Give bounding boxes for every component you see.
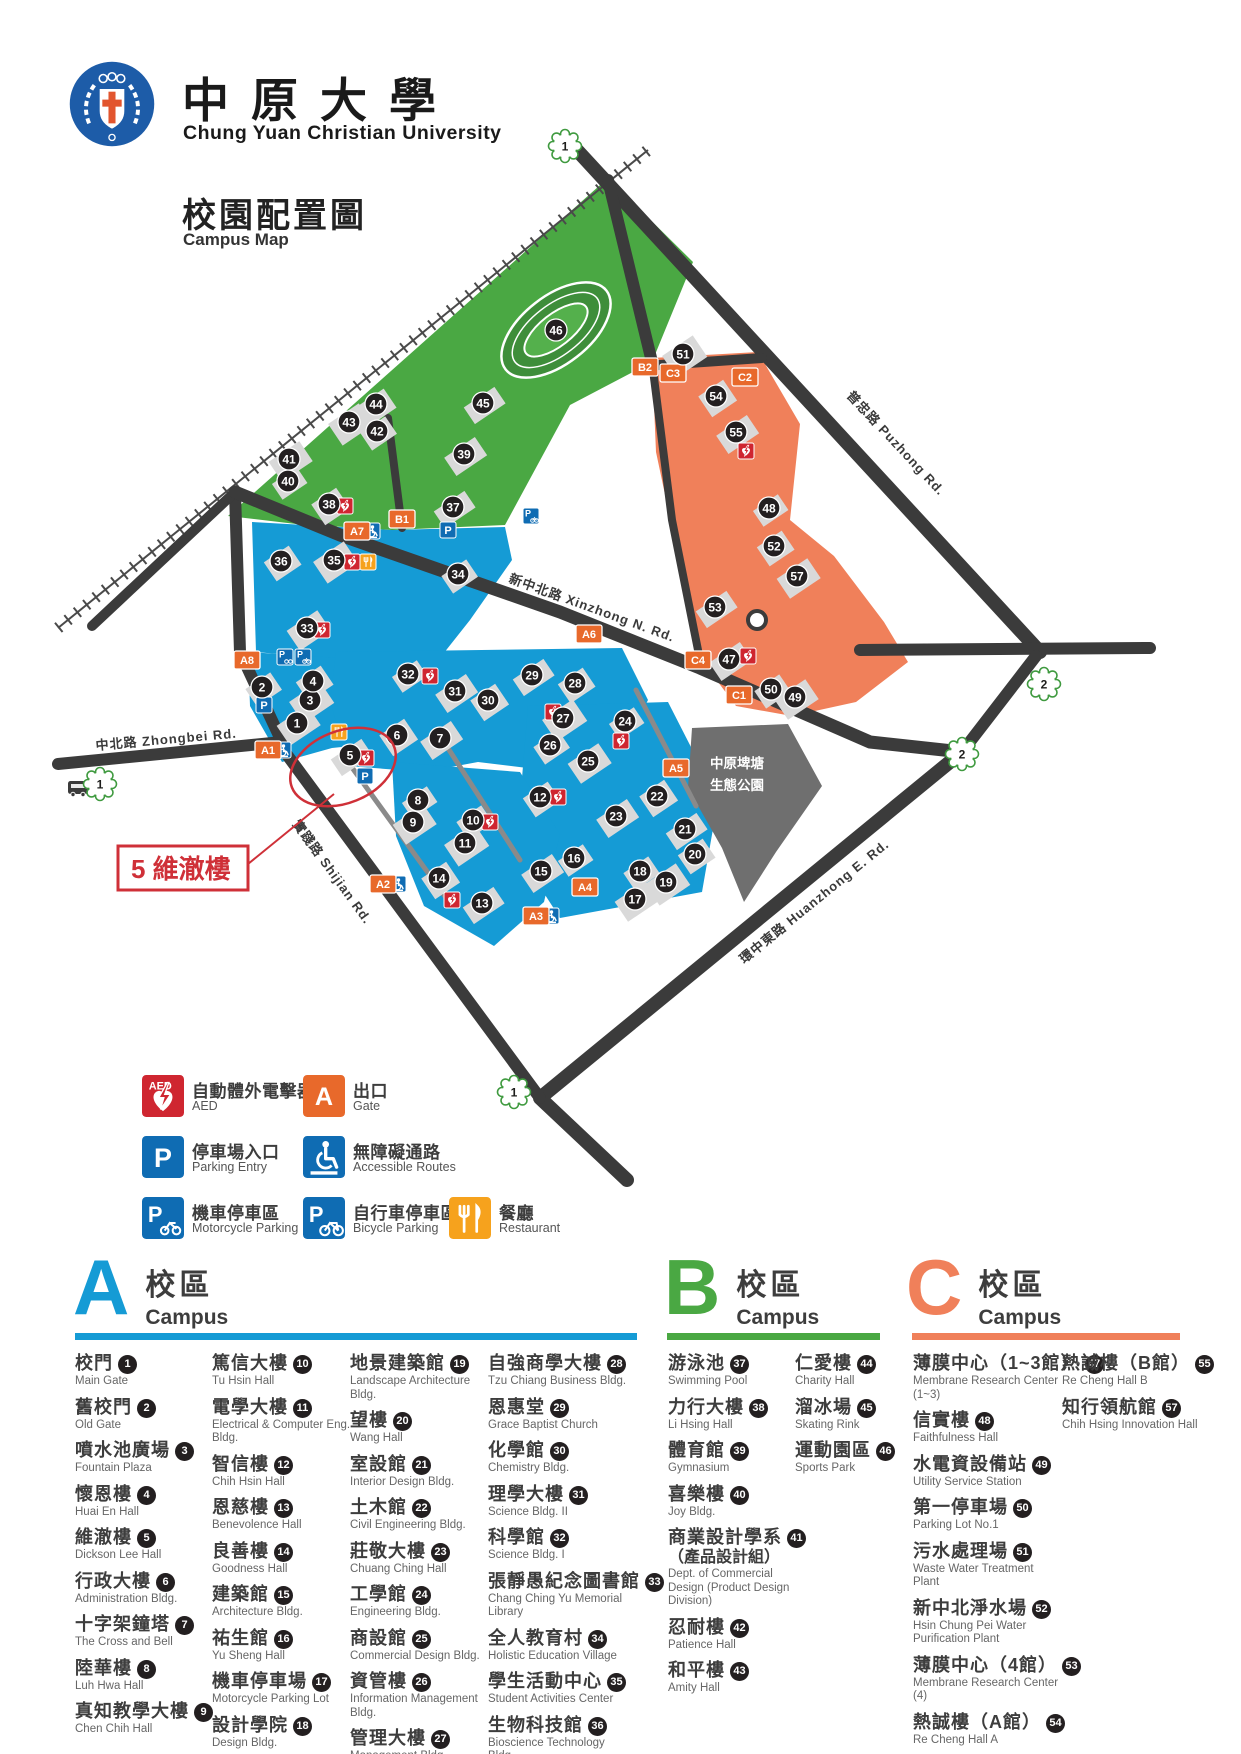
building-name-zh: 智信樓12 <box>212 1453 352 1475</box>
building-list-item-42: 忍耐樓42Patience Hall <box>668 1616 793 1653</box>
building-marker-34: 34 <box>447 563 469 585</box>
road-label: 實踐路 Shijian Rd. <box>290 817 375 927</box>
building-marker-35: 35 <box>323 549 345 571</box>
building-name-en: Utility Service Station <box>913 1476 1060 1490</box>
svg-text:53: 53 <box>708 600 722 614</box>
building-name-zh: 力行大樓38 <box>668 1396 793 1418</box>
building-marker-9: 9 <box>402 811 424 833</box>
building-number-badge: 12 <box>274 1456 293 1475</box>
campus-b-title-en: Campus <box>736 1306 819 1330</box>
svg-text:31: 31 <box>448 684 462 698</box>
building-marker-22: 22 <box>646 785 668 807</box>
building-name-en: The Cross and Bell <box>75 1636 210 1650</box>
building-marker-46: 46 <box>545 319 567 341</box>
aed-icon <box>738 443 754 459</box>
building-name-zh: 第一停車場50 <box>913 1496 1060 1518</box>
svg-text:41: 41 <box>282 452 296 466</box>
building-name-zh: 設計學院18 <box>212 1714 352 1736</box>
svg-text:38: 38 <box>322 497 336 511</box>
building-marker-38: 38 <box>318 493 340 515</box>
building-list-item-5: 維澈樓5Dickson Lee Hall <box>75 1526 210 1563</box>
campus-a-title-en: Campus <box>145 1306 228 1330</box>
building-list-item-32: 科學館32Science Bldg. I <box>488 1526 633 1563</box>
building-name-zh: 喜樂樓40 <box>668 1483 793 1505</box>
building-name-zh: 十字架鐘塔7 <box>75 1613 210 1635</box>
svg-text:37: 37 <box>446 500 460 514</box>
building-name-en: Membrane Research Center (4) <box>913 1677 1060 1704</box>
svg-text:11: 11 <box>459 836 472 850</box>
svg-text:P: P <box>260 700 267 712</box>
building-number-badge: 44 <box>857 1355 876 1374</box>
building-marker-20: 20 <box>684 843 706 865</box>
legend-item-motorcycle-parking: P機車停車區Motorcycle Parking <box>142 1197 317 1243</box>
building-number-badge: 33 <box>645 1573 664 1592</box>
svg-text:9: 9 <box>410 815 417 829</box>
building-marker-33: 33 <box>296 617 318 639</box>
building-name-zh: 薄膜中心（4館）53 <box>913 1654 1060 1676</box>
svg-text:P: P <box>297 650 303 660</box>
building-marker-43: 43 <box>338 411 360 433</box>
svg-text:42: 42 <box>370 424 384 438</box>
svg-text:19: 19 <box>659 875 673 889</box>
road-northwest <box>92 492 235 626</box>
building-list-item-15: 建築館15Architecture Bldg. <box>212 1583 352 1620</box>
svg-text:A5: A5 <box>669 763 683 775</box>
building-number-badge: 46 <box>876 1442 895 1461</box>
svg-text:P: P <box>444 525 451 537</box>
building-marker-41: 41 <box>278 448 300 470</box>
building-name-en: Gymnasium <box>668 1462 793 1476</box>
svg-text:26: 26 <box>543 738 557 752</box>
building-name-en: Science Bldg. I <box>488 1549 633 1563</box>
svg-text:B2: B2 <box>638 362 652 374</box>
svg-text:5: 5 <box>347 748 354 762</box>
building-number-badge: 40 <box>730 1486 749 1505</box>
building-name-en: Dickson Lee Hall <box>75 1549 210 1563</box>
building-name-zh: 陸華樓8 <box>75 1657 210 1679</box>
building-number-badge: 4 <box>137 1486 156 1505</box>
svg-text:33: 33 <box>300 621 314 635</box>
campus-map-poster: 中原埤塘 生態公園 新中北路 Xinzhong N. Rd.普忠路 Puzhon… <box>0 0 1241 1754</box>
campus-c-letter: C <box>906 1252 962 1322</box>
building-list-item-47: 薄膜中心（1~3館）47Membrane Research Center (1~… <box>913 1352 1060 1402</box>
legend-item-aed: AED自動體外電擊器AED <box>142 1075 317 1121</box>
building-marker-12: 12 <box>529 786 551 808</box>
building-number-badge: 26 <box>412 1673 431 1692</box>
gate-badge-A4: A4 <box>572 878 598 896</box>
route-badge-2: 2 <box>946 738 979 771</box>
legend-item-accessible: 無障礙通路Accessible Routes <box>303 1136 478 1182</box>
building-name-en: Tu Hsin Hall <box>212 1375 352 1389</box>
building-name-zh: 污水處理場51 <box>913 1540 1060 1562</box>
parking-entry-icon: P <box>357 768 373 784</box>
building-marker-53: 53 <box>704 596 726 618</box>
building-name-en: Wang Hall <box>350 1432 490 1446</box>
svg-text:44: 44 <box>369 397 383 411</box>
svg-text:6: 6 <box>394 728 401 742</box>
building-marker-51: 51 <box>672 343 694 365</box>
building-marker-36: 36 <box>270 550 292 572</box>
building-name-zh: 篤信大樓10 <box>212 1352 352 1374</box>
building-list-item-23: 莊敬大樓23Chuang Ching Hall <box>350 1540 490 1577</box>
eco-park-label-line2: 生態公園 <box>710 777 764 793</box>
svg-text:14: 14 <box>432 871 446 885</box>
gate-badge-C4: C4 <box>685 651 711 669</box>
building-number-badge: 20 <box>393 1412 412 1431</box>
building-marker-23: 23 <box>605 805 627 827</box>
building-number-badge: 37 <box>730 1355 749 1374</box>
building-name-zh: 校門1 <box>75 1352 210 1374</box>
building-number-badge: 27 <box>431 1730 450 1749</box>
building-name-en: Faithfulness Hall <box>913 1432 1060 1446</box>
building-name-en: Civil Engineering Bldg. <box>350 1519 490 1533</box>
svg-text:40: 40 <box>281 474 295 488</box>
svg-text:17: 17 <box>628 892 642 906</box>
callout-text: 5 維澈樓 <box>131 854 231 884</box>
building-number-badge: 5 <box>137 1529 156 1548</box>
building-name-zh: 商業設計學系41 <box>668 1526 793 1548</box>
building-marker-24: 24 <box>614 710 636 732</box>
building-name-zh: 熱誠樓（B館）55 <box>1062 1352 1212 1374</box>
building-marker-14: 14 <box>428 867 450 889</box>
building-name-zh: 理學大樓31 <box>488 1483 633 1505</box>
building-marker-18: 18 <box>629 860 651 882</box>
building-list-item-17: 機車停車場17Motorcycle Parking Lot <box>212 1670 352 1707</box>
building-name-zh: 良善樓14 <box>212 1540 352 1562</box>
aed-icon <box>740 648 756 664</box>
building-list-item-26: 資管樓26Information Management Bldg. <box>350 1670 490 1720</box>
building-name-en: Luh Hwa Hall <box>75 1680 210 1694</box>
campus-a-column-2: 篤信大樓10Tu Hsin Hall電學大樓11Electrical & Com… <box>212 1352 352 1754</box>
svg-text:50: 50 <box>764 682 778 696</box>
building-number-badge: 11 <box>293 1399 312 1418</box>
svg-text:36: 36 <box>274 554 288 568</box>
svg-text:15: 15 <box>534 864 548 878</box>
building-name-en: Administration Bldg. <box>75 1593 210 1607</box>
building-marker-13: 13 <box>471 892 493 914</box>
route-badge-1: 1 <box>498 1076 531 1109</box>
road-east-ext <box>860 648 1150 650</box>
building-list-item-31: 理學大樓31Science Bldg. II <box>488 1483 633 1520</box>
building-number-badge: 32 <box>550 1529 569 1548</box>
gate-badge-A2: A2 <box>370 875 396 893</box>
building-number-badge: 49 <box>1032 1456 1051 1475</box>
building-number-badge: 48 <box>975 1412 994 1431</box>
building-number-badge: 52 <box>1032 1600 1051 1619</box>
building-name-zh: 科學館32 <box>488 1526 633 1548</box>
building-name-zh-sub: （產品設計組） <box>668 1548 793 1567</box>
building-list-item-9: 真知教學大樓9Chen Chih Hall <box>75 1700 210 1737</box>
building-marker-39: 39 <box>453 443 475 465</box>
restaurant-icon <box>449 1197 491 1239</box>
building-name-zh: 忍耐樓42 <box>668 1616 793 1638</box>
svg-text:18: 18 <box>633 864 647 878</box>
building-number-badge: 38 <box>749 1399 768 1418</box>
aed-icon <box>550 789 566 805</box>
building-name-zh: 熱誠樓（A館）54 <box>913 1711 1060 1733</box>
building-name-zh: 體育館39 <box>668 1439 793 1461</box>
building-marker-44: 44 <box>365 393 387 415</box>
building-name-zh: 噴水池廣場3 <box>75 1439 210 1461</box>
svg-text:29: 29 <box>525 668 539 682</box>
svg-text:55: 55 <box>729 425 743 439</box>
legend-label-en: Motorcycle Parking <box>192 1221 298 1235</box>
svg-text:46: 46 <box>549 323 563 337</box>
building-name-en: Fountain Plaza <box>75 1462 210 1476</box>
building-list-item-20: 望樓20Wang Hall <box>350 1409 490 1446</box>
building-name-zh: 機車停車場17 <box>212 1670 352 1692</box>
building-marker-45: 45 <box>472 392 494 414</box>
building-name-zh: 運動園區46 <box>795 1439 920 1461</box>
university-name-en: Chung Yuan Christian University <box>183 122 502 145</box>
aed-icon <box>613 733 629 749</box>
building-name-en: Chen Chih Hall <box>75 1723 210 1737</box>
building-name-zh: 行政大樓6 <box>75 1570 210 1592</box>
building-list-item-37: 游泳池37Swimming Pool <box>668 1352 793 1389</box>
building-number-badge: 29 <box>550 1399 569 1418</box>
bicycle-parking-icon: P <box>303 1197 345 1239</box>
building-name-zh: 電學大樓11 <box>212 1396 352 1418</box>
building-name-en: Grace Baptist Church <box>488 1419 633 1433</box>
svg-text:C1: C1 <box>732 690 746 702</box>
svg-text:57: 57 <box>790 569 804 583</box>
building-name-en: Swimming Pool <box>668 1375 793 1389</box>
building-name-zh: 張靜愚紀念圖書館33 <box>488 1570 633 1592</box>
building-list-item-27: 管理大樓27Management Bldg. <box>350 1727 490 1754</box>
building-name-zh: 商設館25 <box>350 1627 490 1649</box>
aed-icon <box>422 668 438 684</box>
building-name-zh: 真知教學大樓9 <box>75 1700 210 1722</box>
building-marker-5: 5 <box>339 744 361 766</box>
building-number-badge: 36 <box>588 1717 607 1736</box>
building-list-item-48: 信實樓48Faithfulness Hall <box>913 1409 1060 1446</box>
svg-text:C4: C4 <box>691 655 706 667</box>
legend-label-en: Parking Entry <box>192 1160 267 1174</box>
building-name-en: Design Bldg. <box>212 1737 352 1751</box>
building-name-zh: 信實樓48 <box>913 1409 1060 1431</box>
svg-text:A3: A3 <box>529 911 543 923</box>
building-marker-1: 1 <box>286 712 308 734</box>
building-marker-31: 31 <box>444 680 466 702</box>
building-number-badge: 50 <box>1013 1499 1032 1518</box>
svg-text:2: 2 <box>1041 677 1048 691</box>
building-name-zh: 恩慈樓13 <box>212 1496 352 1518</box>
building-number-badge: 55 <box>1195 1355 1214 1374</box>
svg-text:C3: C3 <box>666 368 680 380</box>
building-marker-19: 19 <box>655 871 677 893</box>
building-name-en: Benevolence Hall <box>212 1519 352 1533</box>
building-number-badge: 3 <box>175 1442 194 1461</box>
building-marker-26: 26 <box>539 734 561 756</box>
building-name-en: Architecture Bldg. <box>212 1606 352 1620</box>
building-marker-8: 8 <box>407 789 429 811</box>
building-number-badge: 41 <box>787 1529 806 1548</box>
building-list-item-1: 校門1Main Gate <box>75 1352 210 1389</box>
building-name-en: Chuang Ching Hall <box>350 1563 490 1577</box>
campus-a-column-4: 自強商學大樓28Tzu Chiang Business Bldg.恩惠堂29Gr… <box>488 1352 633 1754</box>
building-name-zh: 仁愛樓44 <box>795 1352 920 1374</box>
legend-label-en: Gate <box>353 1099 380 1113</box>
building-list-item-7: 十字架鐘塔7The Cross and Bell <box>75 1613 210 1650</box>
svg-text:P: P <box>525 509 531 519</box>
svg-text:49: 49 <box>788 690 802 704</box>
svg-text:30: 30 <box>481 693 495 707</box>
campus-a-title-zh: 校區 <box>145 1260 228 1304</box>
legend-item-restaurant: 餐廳Restaurant <box>449 1197 624 1243</box>
building-marker-55: 55 <box>725 421 747 443</box>
svg-text:P: P <box>361 771 368 783</box>
building-list-item-39: 體育館39Gymnasium <box>668 1439 793 1476</box>
building-list-item-55: 熱誠樓（B館）55Re Cheng Hall B <box>1062 1352 1212 1389</box>
svg-text:43: 43 <box>342 415 356 429</box>
building-name-en: Waste Water Treatment Plant <box>913 1563 1060 1590</box>
building-name-zh: 管理大樓27 <box>350 1727 490 1749</box>
svg-text:A6: A6 <box>582 629 596 641</box>
building-name-zh: 生物科技館36 <box>488 1714 633 1736</box>
building-number-badge: 18 <box>293 1717 312 1736</box>
building-number-badge: 42 <box>730 1619 749 1638</box>
building-name-en: Re Cheng Hall A <box>913 1734 1060 1748</box>
aed-icon <box>344 554 360 570</box>
building-marker-11: 11 <box>454 832 476 854</box>
svg-text:A8: A8 <box>240 655 254 667</box>
building-name-zh: 知行領航館57 <box>1062 1396 1212 1418</box>
building-list-item-43: 和平樓43Amity Hall <box>668 1659 793 1696</box>
building-name-en: Holistic Education Village <box>488 1650 633 1664</box>
building-list-item-53: 薄膜中心（4館）53Membrane Research Center (4) <box>913 1654 1060 1704</box>
campus-c-title-en: Campus <box>978 1306 1061 1330</box>
legend-label-en: AED <box>192 1099 218 1113</box>
svg-text:3: 3 <box>307 693 314 707</box>
building-list-item-28: 自強商學大樓28Tzu Chiang Business Bldg. <box>488 1352 633 1389</box>
building-name-en: Tzu Chiang Business Bldg. <box>488 1375 633 1389</box>
svg-text:32: 32 <box>401 667 415 681</box>
building-name-zh: 懷恩樓4 <box>75 1483 210 1505</box>
building-number-badge: 7 <box>175 1616 194 1635</box>
building-list-item-34: 全人教育村34Holistic Education Village <box>488 1627 633 1664</box>
svg-text:A1: A1 <box>261 745 275 757</box>
building-marker-54: 54 <box>705 385 727 407</box>
gate-badge-A3: A3 <box>523 907 549 925</box>
building-name-zh: 游泳池37 <box>668 1352 793 1374</box>
building-name-en: Chemistry Bldg. <box>488 1462 633 1476</box>
svg-text:12: 12 <box>533 790 547 804</box>
svg-text:34: 34 <box>451 567 465 581</box>
bicycle-parking-icon: P <box>523 508 539 524</box>
motorcycle-parking-icon: P <box>142 1197 184 1239</box>
building-name-zh: 薄膜中心（1~3館）47 <box>913 1352 1060 1374</box>
svg-text:35: 35 <box>327 553 341 567</box>
building-list-item-40: 喜樂樓40Joy Bldg. <box>668 1483 793 1520</box>
gate-badge-C2: C2 <box>732 368 758 386</box>
building-marker-48: 48 <box>758 497 780 519</box>
building-list-item-16: 祐生館16Yu Sheng Hall <box>212 1627 352 1664</box>
gate-badge-A1: A1 <box>255 741 281 759</box>
campus-c-title-zh: 校區 <box>978 1260 1061 1304</box>
building-number-badge: 45 <box>857 1399 876 1418</box>
svg-text:48: 48 <box>762 501 776 515</box>
building-list-item-24: 工學館24Engineering Bldg. <box>350 1583 490 1620</box>
building-list-item-22: 土木館22Civil Engineering Bldg. <box>350 1496 490 1533</box>
building-list-item-6: 行政大樓6Administration Bldg. <box>75 1570 210 1607</box>
building-marker-7: 7 <box>429 727 451 749</box>
building-name-en: Yu Sheng Hall <box>212 1650 352 1664</box>
legend-item-parking-entry: P停車場入口Parking Entry <box>142 1136 317 1182</box>
building-name-zh: 化學館30 <box>488 1439 633 1461</box>
building-number-badge: 22 <box>412 1499 431 1518</box>
svg-text:16: 16 <box>567 851 581 865</box>
campus-c-header: C 校區 Campus <box>906 1252 1061 1330</box>
svg-text:27: 27 <box>556 711 570 725</box>
svg-text:1: 1 <box>97 777 104 791</box>
gate-badge-C1: C1 <box>726 686 752 704</box>
svg-text:25: 25 <box>581 754 595 768</box>
building-name-zh: 新中北淨水場52 <box>913 1597 1060 1619</box>
building-number-badge: 34 <box>588 1630 607 1649</box>
building-name-en: Main Gate <box>75 1375 210 1389</box>
building-list-item-57: 知行領航館57Chih Hsing Innovation Hall <box>1062 1396 1212 1433</box>
building-number-badge: 13 <box>274 1499 293 1518</box>
svg-text:21: 21 <box>678 822 692 836</box>
building-marker-42: 42 <box>366 420 388 442</box>
gate-badge-C3: C3 <box>660 364 686 382</box>
svg-text:7: 7 <box>437 731 444 745</box>
building-name-en: Parking Lot No.1 <box>913 1519 1060 1533</box>
building-list-item-51: 污水處理場51Waste Water Treatment Plant <box>913 1540 1060 1590</box>
building-number-badge: 14 <box>274 1543 293 1562</box>
campus-c-column-1: 薄膜中心（1~3館）47Membrane Research Center (1~… <box>913 1352 1060 1754</box>
building-list-item-30: 化學館30Chemistry Bldg. <box>488 1439 633 1476</box>
building-marker-6: 6 <box>386 724 408 746</box>
building-name-en: Bioscience Technology Bldg. <box>488 1737 633 1754</box>
building-number-badge: 51 <box>1013 1543 1032 1562</box>
building-list-item-2: 舊校門2Old Gate <box>75 1396 210 1433</box>
svg-text:P: P <box>309 1202 324 1227</box>
building-list-item-36: 生物科技館36Bioscience Technology Bldg. <box>488 1714 633 1754</box>
svg-text:8: 8 <box>415 793 422 807</box>
svg-text:51: 51 <box>676 347 690 361</box>
building-list-item-4: 懷恩樓4Huai En Hall <box>75 1483 210 1520</box>
building-name-en: Chih Hsin Hall <box>212 1476 352 1490</box>
route-badge-1: 1 <box>549 130 582 163</box>
building-name-zh: 工學館24 <box>350 1583 490 1605</box>
building-name-zh: 建築館15 <box>212 1583 352 1605</box>
svg-text:A7: A7 <box>350 526 364 538</box>
svg-text:1: 1 <box>511 1085 518 1099</box>
building-marker-29: 29 <box>521 664 543 686</box>
svg-text:52: 52 <box>767 539 781 553</box>
eco-park-label-line1: 中原埤塘 <box>710 755 764 771</box>
building-name-en: Hsin Chung Pei Water Purification Plant <box>913 1620 1060 1647</box>
building-name-en: Science Bldg. II <box>488 1506 633 1520</box>
building-marker-2: 2 <box>251 676 273 698</box>
building-list-item-38: 力行大樓38Li Hsing Hall <box>668 1396 793 1433</box>
aed-icon <box>444 892 460 908</box>
building-list-item-21: 室設館21Interior Design Bldg. <box>350 1453 490 1490</box>
gate-icon: A <box>303 1075 345 1117</box>
building-number-badge: 30 <box>550 1442 569 1461</box>
building-name-zh: 溜冰場45 <box>795 1396 920 1418</box>
building-number-badge: 1 <box>118 1355 137 1374</box>
building-name-en: Huai En Hall <box>75 1506 210 1520</box>
building-name-zh: 恩惠堂29 <box>488 1396 633 1418</box>
building-list-item-54: 熱誠樓（A館）54Re Cheng Hall A <box>913 1711 1060 1748</box>
building-number-badge: 2 <box>137 1399 156 1418</box>
building-name-zh: 室設館21 <box>350 1453 490 1475</box>
building-number-badge: 8 <box>137 1660 156 1679</box>
building-name-en: Sports Park <box>795 1462 920 1476</box>
svg-text:28: 28 <box>568 676 582 690</box>
